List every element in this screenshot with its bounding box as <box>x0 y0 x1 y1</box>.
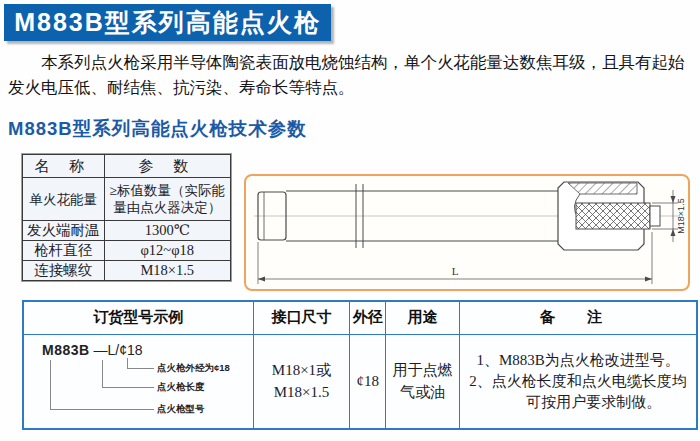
table-row: M883B —L/¢18 点火枪外经为¢18 点火枪长度 点火枪型号 M18×1… <box>23 334 697 429</box>
callout-line <box>102 360 103 387</box>
spec-value-cell: φ12~φ18 <box>104 241 230 261</box>
order-header-model: 订货型号示例 <box>23 301 253 334</box>
order-header-remarks: 备 注 <box>460 301 697 334</box>
length-dimension-label: L <box>452 265 459 277</box>
table-row: 枪杆直径 φ12~φ18 <box>23 241 231 261</box>
intro-paragraph: 本系列点火枪采用半导体陶瓷表面放电烧蚀结构，单个火花能量达数焦耳级，且具有起始发… <box>8 50 694 100</box>
remarks-cell: 1、M883B为点火枪改进型号。 2、点火枪长度和点火电缆长度均可按用户要求制做… <box>460 334 697 429</box>
spec-value-cell: ≥标值数量（实际能量由点火器决定） <box>104 178 230 221</box>
section-heading: M883B型系列高能点火枪技术参数 <box>8 116 307 141</box>
callout-label-model: 点火枪型号 <box>157 403 205 416</box>
page-title: M883B型系列高能点火枪 <box>14 6 321 39</box>
callout-label-length: 点火枪长度 <box>157 381 205 394</box>
interface-size-line: M18×1.5 <box>254 381 350 403</box>
outer-diameter-cell: ¢18 <box>350 334 386 429</box>
callout-label-diameter: 点火枪外经为¢18 <box>157 362 230 375</box>
table-row: 发火端耐温 1300℃ <box>23 221 231 241</box>
callout-line <box>127 368 154 369</box>
technical-drawing-panel: M18×1.5 L <box>244 174 690 291</box>
spec-name-cell: 发火端耐温 <box>23 221 105 241</box>
ignition-gun-drawing: M18×1.5 L <box>246 176 688 289</box>
spec-header-param: 参 数 <box>104 155 230 178</box>
callout-line <box>127 358 128 368</box>
table-row: 单火花能量 ≥标值数量（实际能量由点火器决定） <box>23 178 231 221</box>
model-code: M883B <box>42 342 90 358</box>
spec-name-cell: 单火花能量 <box>23 178 105 221</box>
order-header-usage: 用途 <box>386 301 460 334</box>
model-suffix: —L/¢18 <box>90 342 143 358</box>
spec-value-cell: M18×1.5 <box>104 261 230 281</box>
spec-value-cell: 1300℃ <box>104 221 230 241</box>
spec-table: 名 称 参 数 单火花能量 ≥标值数量（实际能量由点火器决定） 发火端耐温 13… <box>22 154 231 281</box>
table-row: 连接螺纹 M18×1.5 <box>23 261 231 281</box>
spec-header-name: 名 称 <box>23 155 105 178</box>
spec-name-cell: 连接螺纹 <box>23 261 105 281</box>
order-header-interface: 接口尺寸 <box>253 301 350 334</box>
page-title-bar: M883B型系列高能点火枪 <box>4 4 331 41</box>
spec-table-header-row: 名 称 参 数 <box>23 155 231 178</box>
order-table-header-row: 订货型号示例 接口尺寸 外径 用途 备 注 <box>23 301 697 334</box>
order-header-diameter: 外径 <box>350 301 386 334</box>
model-example-code: M883B —L/¢18 <box>42 342 143 358</box>
model-example-cell: M883B —L/¢18 点火枪外经为¢18 点火枪长度 点火枪型号 <box>23 334 253 429</box>
order-table: 订货型号示例 接口尺寸 外径 用途 备 注 M883B —L/¢18 点火枪外经… <box>22 300 698 430</box>
interface-size-cell: M18×1或 M18×1.5 <box>253 334 350 429</box>
remark-item: 1、M883B为点火枪改进型号。 <box>468 350 688 371</box>
remark-item: 2、点火枪长度和点火电缆长度均可按用户要求制做。 <box>468 371 688 413</box>
thread-dimension-label: M18×1.5 <box>676 198 686 233</box>
callout-line <box>50 360 51 409</box>
usage-cell: 用于点燃气或油 <box>386 334 460 429</box>
interface-size-line: M18×1或 <box>254 359 350 381</box>
callout-line <box>50 409 154 410</box>
spec-name-cell: 枪杆直径 <box>23 241 105 261</box>
callout-line <box>102 387 154 388</box>
catalog-page: M883B型系列高能点火枪 本系列点火枪采用半导体陶瓷表面放电烧蚀结构，单个火花… <box>0 0 700 441</box>
